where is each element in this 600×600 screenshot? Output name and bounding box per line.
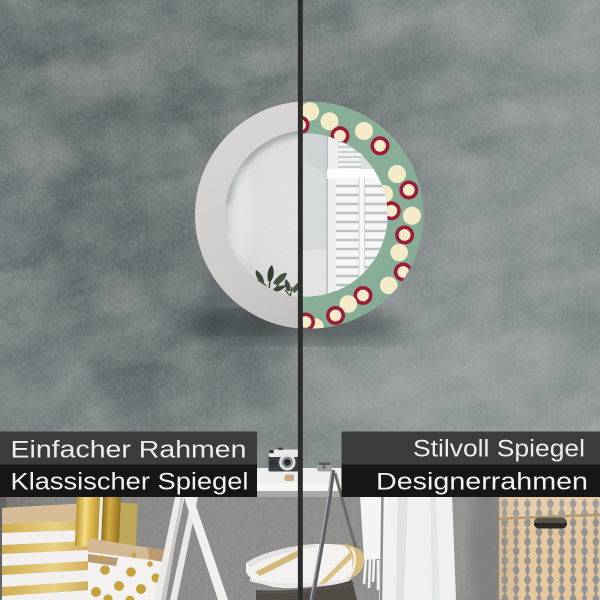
svg-text:Stilvoll Spiegel: Stilvoll Spiegel (413, 436, 585, 463)
svg-text:Einfacher Rahmen: Einfacher Rahmen (11, 437, 247, 464)
svg-text:Designerrahmen: Designerrahmen (376, 469, 588, 496)
svg-text:Klassischer Spiegel: Klassischer Spiegel (11, 469, 249, 496)
